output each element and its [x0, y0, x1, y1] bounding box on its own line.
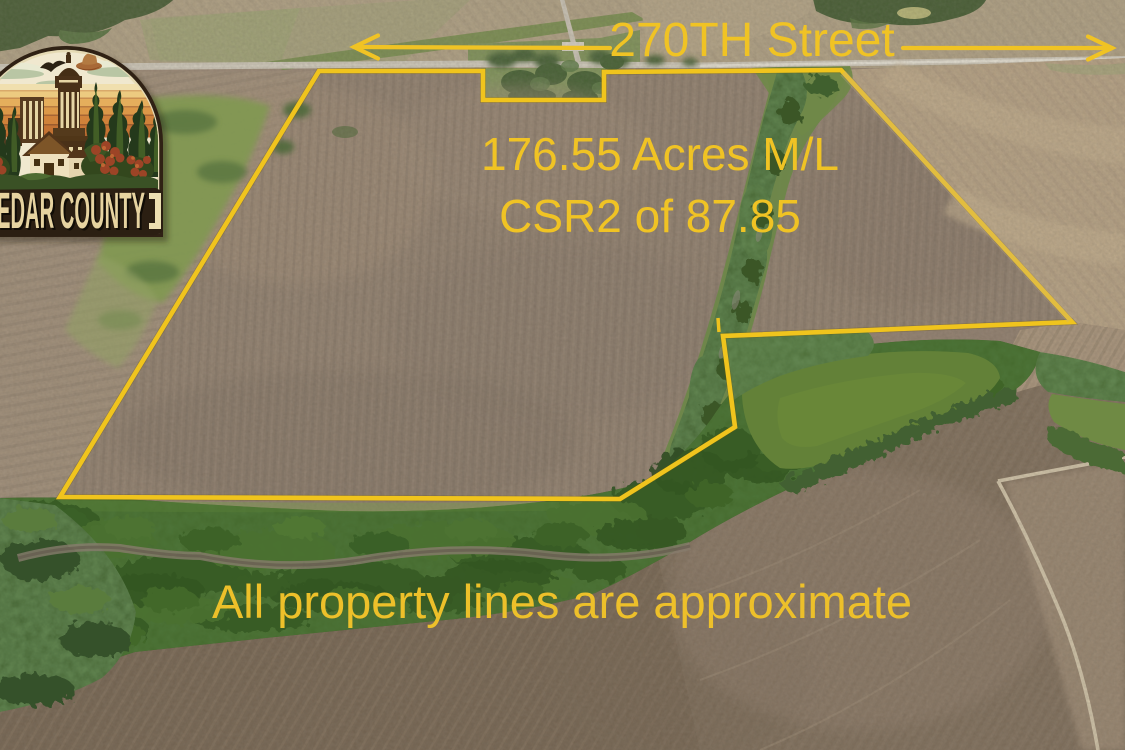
svg-text:270TH Street: 270TH Street: [609, 14, 894, 67]
svg-text:176.55 Acres M/L: 176.55 Acres M/L: [481, 128, 839, 180]
svg-text:CSR2 of 87.85: CSR2 of 87.85: [499, 190, 801, 242]
svg-text:All property lines are approxi: All property lines are approximate: [212, 575, 912, 628]
svg-text:EDAR COUNTY: EDAR COUNTY: [0, 182, 145, 239]
